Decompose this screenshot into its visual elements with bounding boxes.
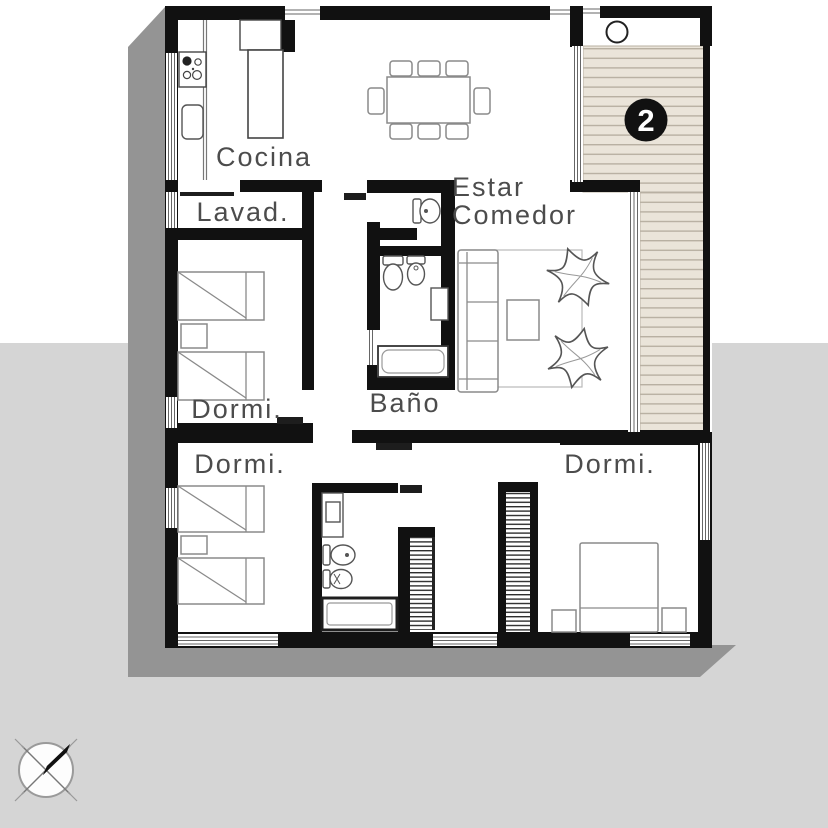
bathtub-icon (322, 598, 397, 630)
window-bathroom-left (367, 330, 377, 365)
window-bedroom3-right (700, 443, 710, 540)
stove-icon (179, 52, 206, 87)
floor-plan-drawing: 2 (0, 0, 828, 828)
window-hall-bottom (433, 634, 497, 646)
toilet-icon (413, 199, 440, 223)
bidet-icon (407, 256, 425, 285)
room-label-dormitorio-2: Dormi. (194, 449, 286, 479)
window-bedroom3-bottom (630, 634, 690, 646)
wardrobe-closet-1 (410, 537, 435, 630)
window-bedroom2-bottom (178, 634, 278, 646)
kitchen-counter (240, 20, 281, 50)
kitchen-sink-icon (182, 105, 203, 139)
window-living-deck-east (628, 192, 640, 432)
vanity-sink-icon (322, 493, 343, 537)
single-bed (178, 558, 264, 604)
coffee-table (507, 300, 539, 340)
window-living-deck-north (572, 46, 583, 182)
dining-table (387, 77, 470, 123)
room-label-cocina: Cocina (216, 142, 312, 172)
floor-plan-canvas: 2 (0, 0, 828, 828)
room-label-bano: Baño (369, 388, 440, 418)
nightstand (181, 536, 207, 554)
room-label-estar: Estar (452, 172, 525, 202)
unit-badge-number: 2 (637, 103, 654, 138)
sofa (458, 250, 498, 392)
room-label-dormitorio-1: Dormi. (191, 394, 283, 424)
north-compass-icon (15, 739, 77, 801)
window-bedroom1-left (166, 397, 177, 428)
bathroom-cabinet (431, 288, 448, 320)
nightstand (181, 324, 207, 348)
room-label-dormitorio-3: Dormi. (564, 449, 656, 479)
unit-badge: 2 (625, 99, 668, 142)
single-bed (178, 352, 264, 400)
single-bed (178, 486, 264, 532)
window-kitchen-left (166, 53, 177, 180)
wall-hung-toilet-icon (383, 256, 403, 290)
room-label-comedor: Comedor (452, 200, 577, 230)
window-laundry-left (166, 192, 177, 228)
bidet-icon (323, 570, 352, 589)
nightstand (662, 608, 686, 632)
toilet-icon (323, 545, 355, 565)
deck-room-fixture-circle-icon (607, 22, 628, 43)
double-bed (580, 543, 658, 632)
bathtub-icon (378, 346, 448, 377)
single-bed (178, 272, 264, 320)
wardrobe-closet-2 (506, 492, 530, 632)
window-bedroom2-left (166, 488, 177, 528)
nightstand (552, 610, 576, 632)
room-label-lavadero: Lavad. (196, 197, 289, 227)
kitchen-island (248, 50, 283, 138)
